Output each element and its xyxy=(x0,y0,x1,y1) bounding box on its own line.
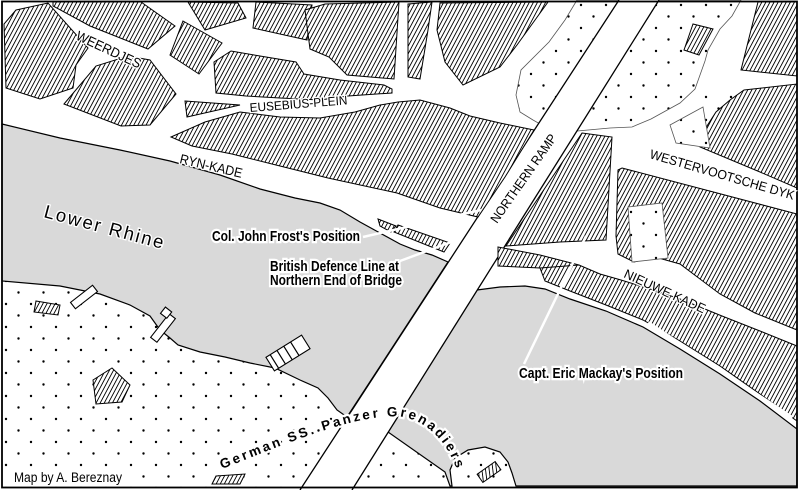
svg-text:Capt. Eric Mackay's Position: Capt. Eric Mackay's Position xyxy=(519,366,683,382)
svg-text:Map by A. Bereznay: Map by A. Bereznay xyxy=(14,470,122,485)
svg-text:Northern End of Bridge: Northern End of Bridge xyxy=(270,273,402,289)
svg-text:Col. John Frost's Position: Col. John Frost's Position xyxy=(212,228,360,245)
